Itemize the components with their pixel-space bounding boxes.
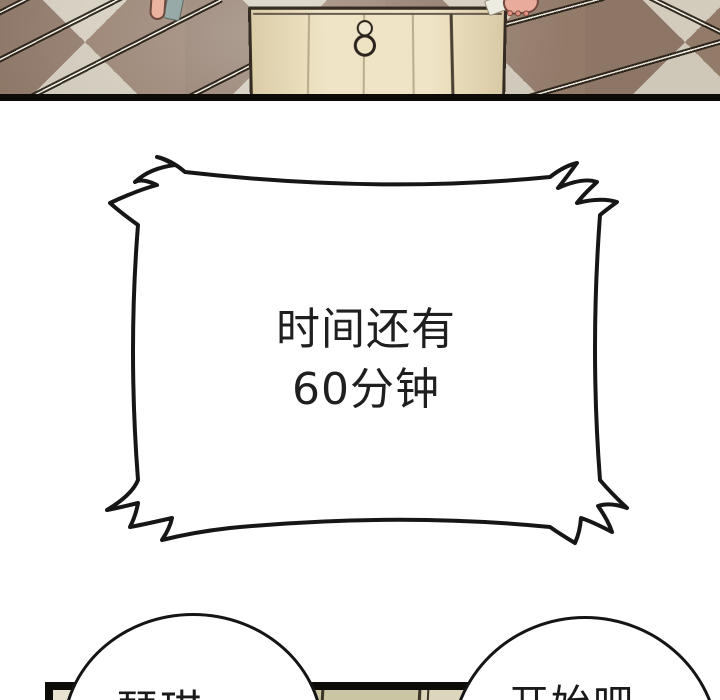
- wall-seam: [321, 690, 324, 700]
- burst-bubble-text: 时间还有 60分钟: [166, 300, 566, 420]
- trapdoor-plank-line: [307, 14, 310, 99]
- latch-ring-icon: [357, 20, 373, 36]
- trapdoor: [248, 7, 507, 101]
- wall-seam: [427, 690, 429, 700]
- speech-bubble-left-text: 瑟琪: [60, 686, 260, 700]
- burst-bubble-line2: 60分钟: [166, 360, 566, 420]
- comic-page: 时间还有 60分钟 瑟琪 开始吧: [0, 0, 720, 700]
- top-panel: [0, 0, 720, 101]
- trapdoor-edge-line: [253, 13, 502, 15]
- trapdoor-plank-line: [449, 14, 453, 99]
- burst-bubble-line1: 时间还有: [166, 300, 566, 360]
- wall-seam: [418, 690, 421, 700]
- speech-bubble-right-text: 开始吧: [472, 681, 672, 700]
- trapdoor-plank-line: [412, 14, 415, 99]
- latch-base-icon: [354, 34, 376, 56]
